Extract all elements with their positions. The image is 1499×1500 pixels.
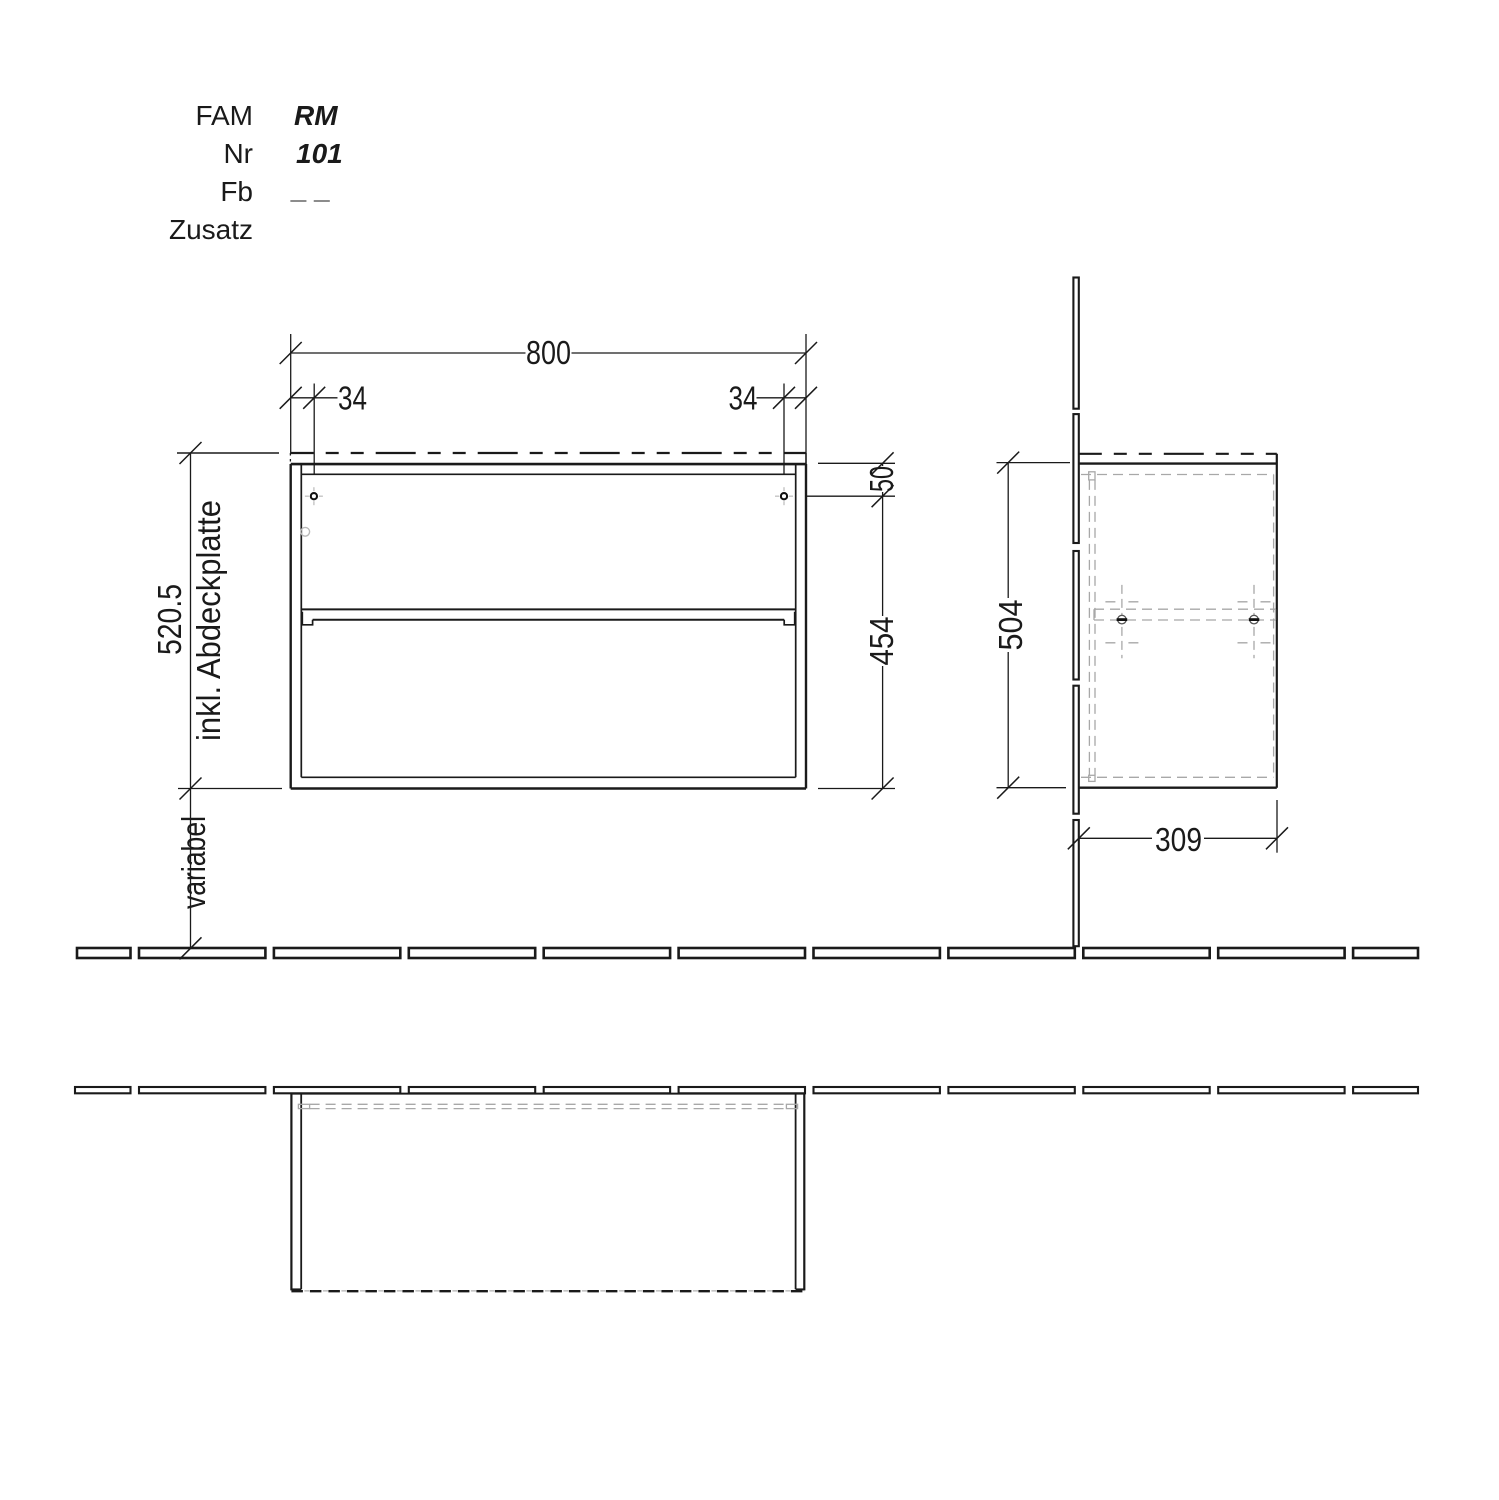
svg-text:101: 101	[296, 138, 343, 169]
svg-text:RM: RM	[294, 100, 338, 131]
svg-text:454: 454	[863, 617, 900, 666]
svg-text:800: 800	[526, 334, 571, 371]
svg-text:variabel: variabel	[175, 816, 212, 909]
svg-text:inkl. Abdeckplatte: inkl. Abdeckplatte	[190, 500, 227, 741]
svg-text:34: 34	[338, 379, 367, 416]
svg-text:50: 50	[863, 466, 900, 492]
svg-text:34: 34	[729, 379, 758, 416]
svg-text:FAM: FAM	[195, 100, 253, 131]
svg-text:309: 309	[1155, 821, 1202, 858]
svg-text:_ _: _ _	[290, 173, 331, 204]
svg-text:Zusatz: Zusatz	[169, 214, 253, 245]
svg-text:504: 504	[992, 600, 1029, 651]
svg-text:520.5: 520.5	[151, 584, 188, 655]
svg-text:Fb: Fb	[220, 176, 253, 207]
svg-text:Nr: Nr	[223, 138, 253, 169]
